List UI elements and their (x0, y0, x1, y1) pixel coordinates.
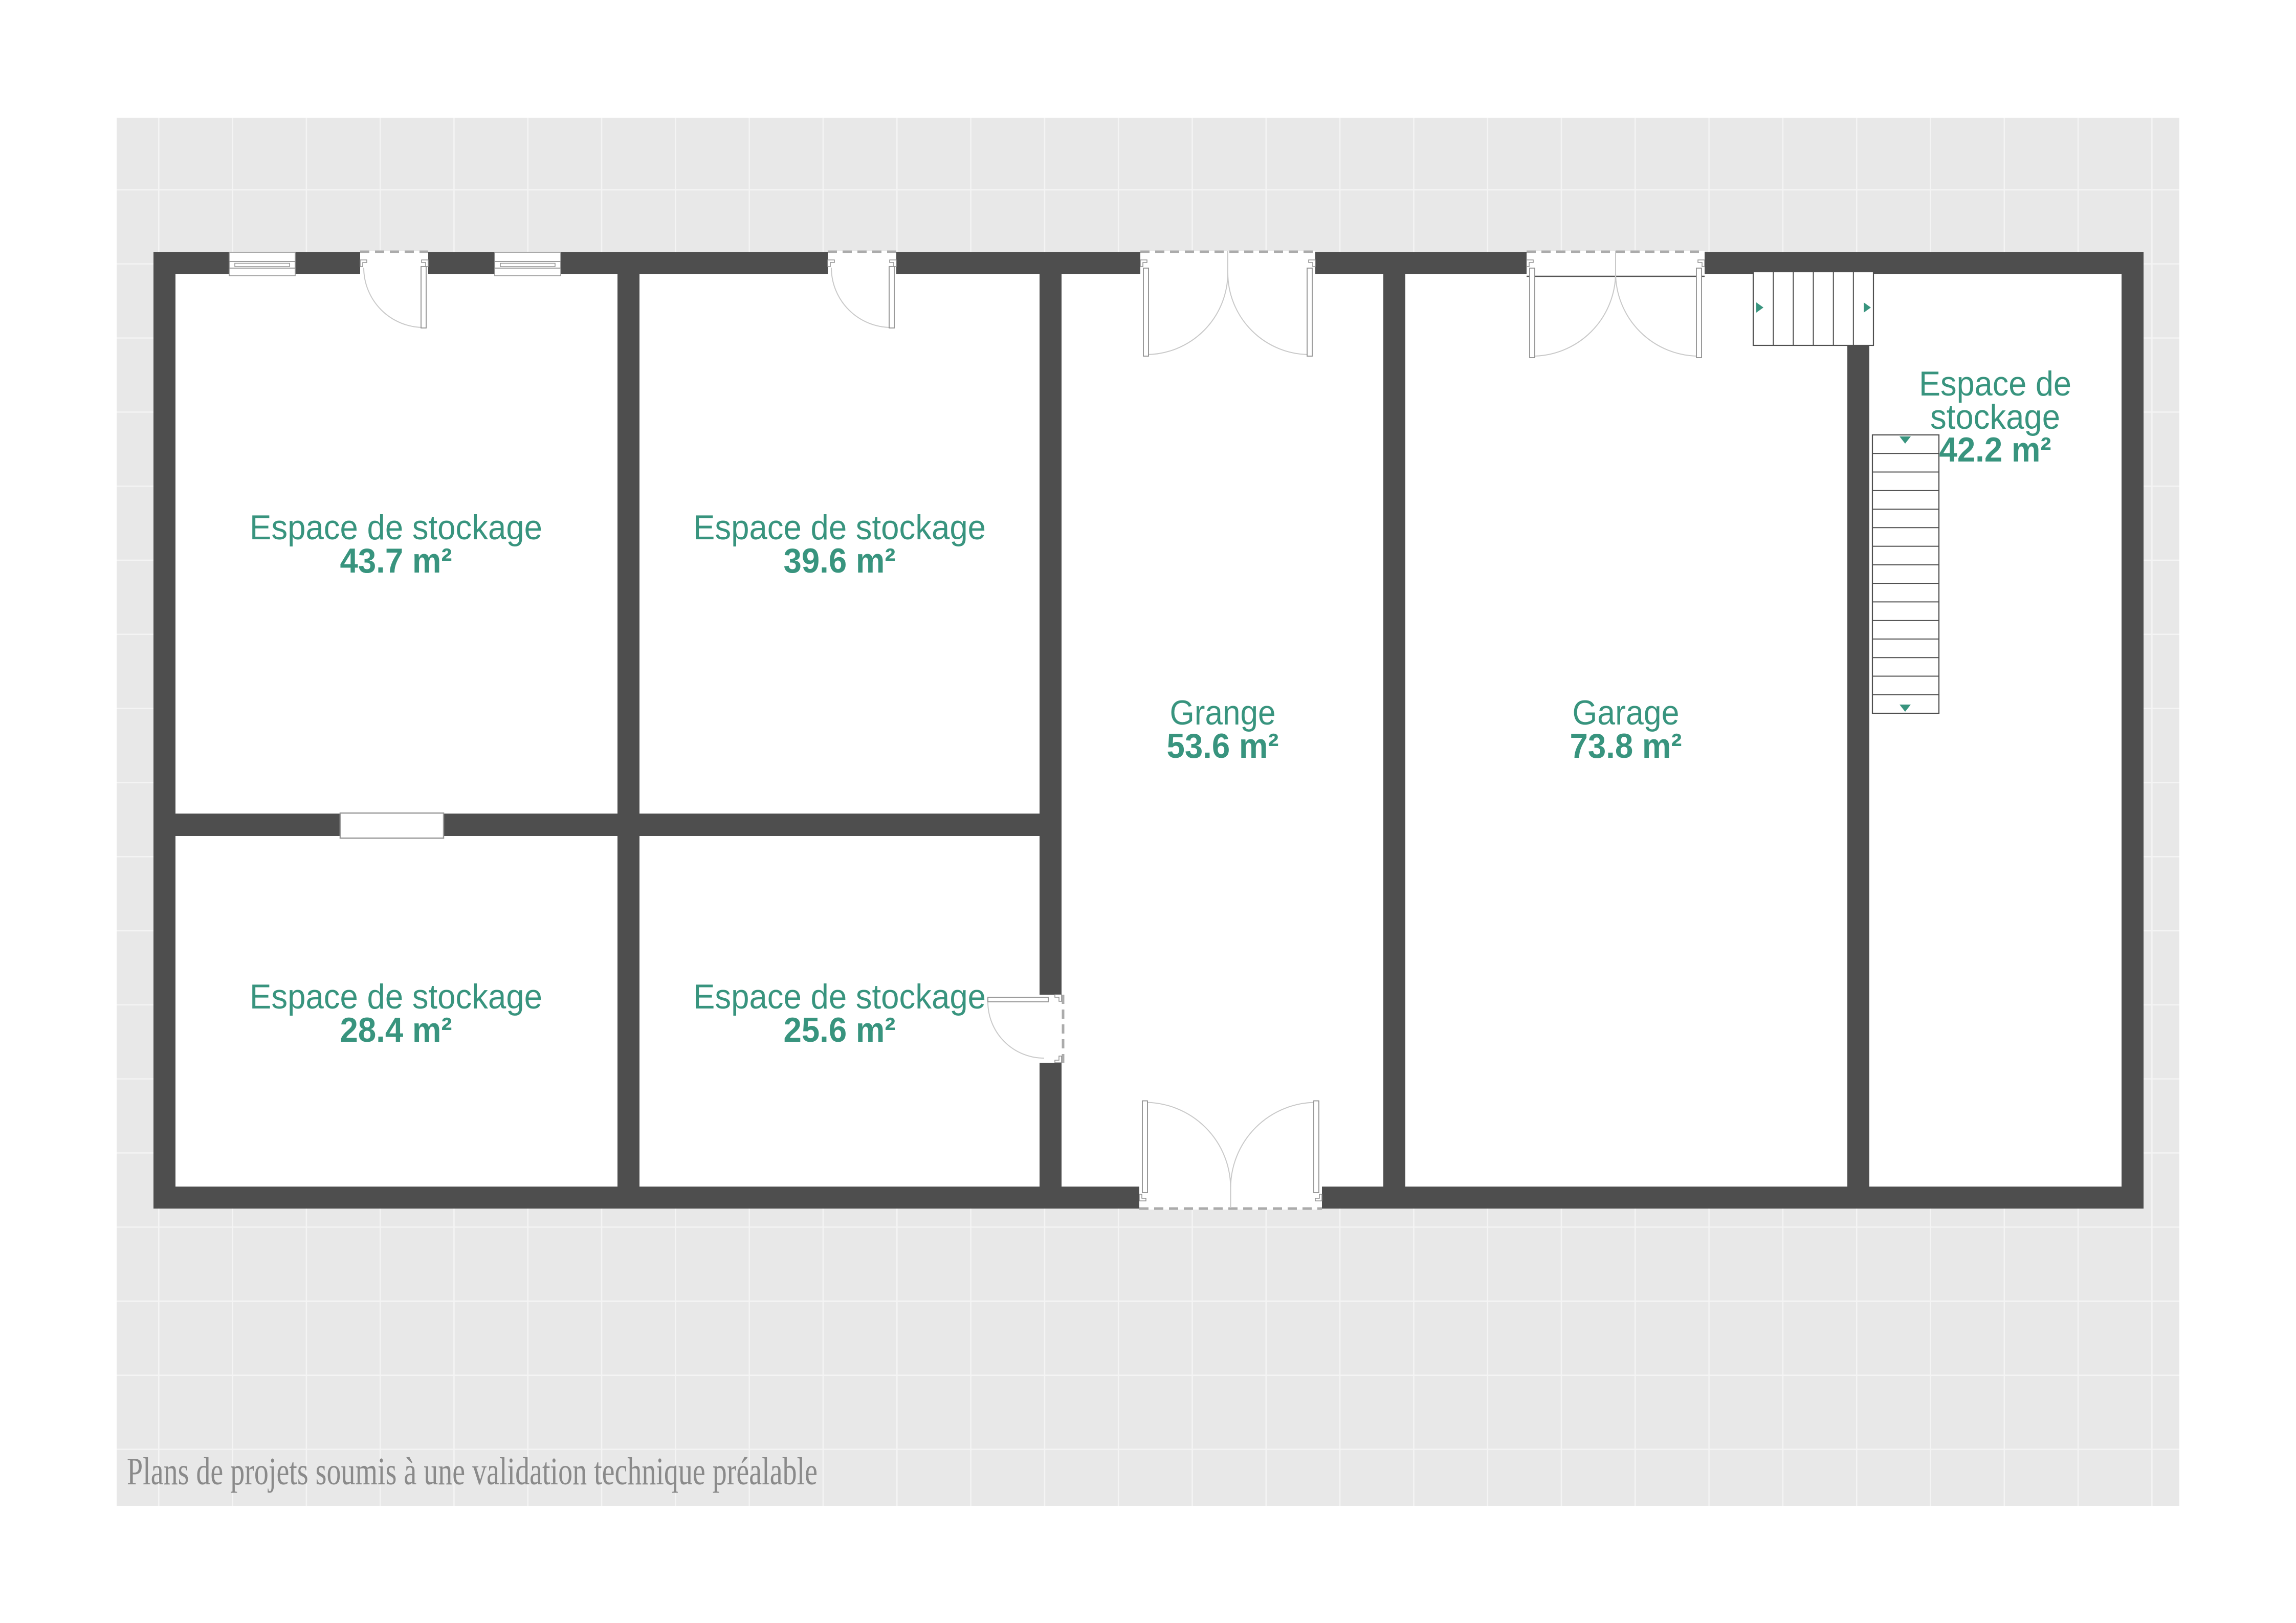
svg-text:43.7 m²: 43.7 m² (340, 541, 452, 580)
svg-text:39.6 m²: 39.6 m² (784, 541, 896, 580)
svg-text:28.4 m²: 28.4 m² (340, 1011, 452, 1049)
svg-text:42.2 m²: 42.2 m² (1939, 430, 2051, 469)
svg-text:53.6 m²: 53.6 m² (1167, 727, 1279, 765)
svg-text:Plans de projets soumis à une: Plans de projets soumis à une validation… (127, 1450, 818, 1493)
svg-text:73.8 m²: 73.8 m² (1570, 727, 1682, 765)
svg-text:25.6 m²: 25.6 m² (784, 1011, 896, 1049)
